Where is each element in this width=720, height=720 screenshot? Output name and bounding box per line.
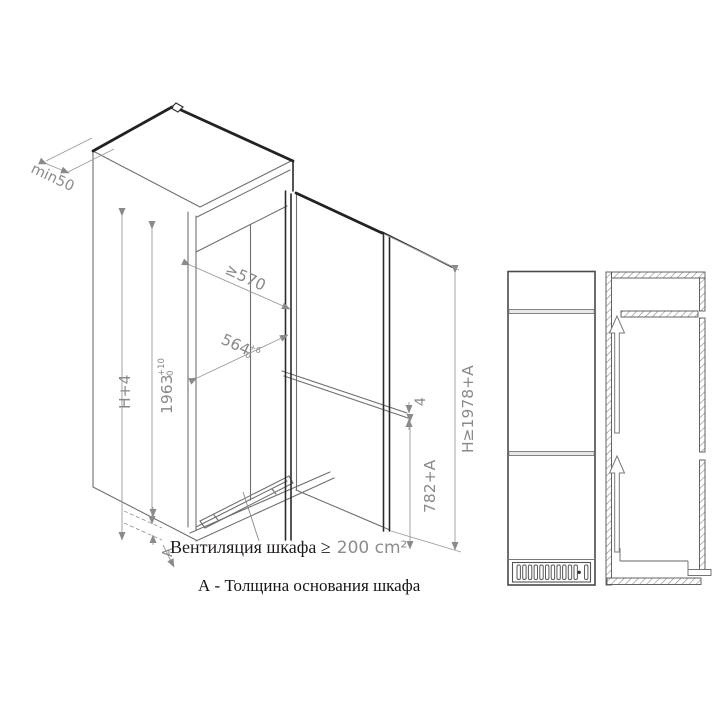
section-appliance-top: [621, 311, 698, 317]
label-width-group: 564 +6 0: [218, 330, 263, 364]
section-top-wall: [612, 272, 706, 278]
front-view: [508, 272, 595, 586]
label-niche-height: 1963: [158, 375, 176, 414]
label-h4: H+4: [116, 374, 134, 409]
front-view-top-divider: [509, 310, 594, 314]
label-door-gap: 4: [413, 397, 429, 406]
isometric-cabinet-drawing: [93, 103, 452, 541]
section-right-wall-upper: [700, 278, 706, 311]
base-definition-note: А - Толщина основания шкафа: [198, 576, 420, 596]
front-view-outline: [508, 272, 595, 586]
section-left-wall: [606, 272, 612, 585]
extension-line-top: [384, 234, 459, 270]
ventilation-note: Вентиляция шкафа ≥200 cm²: [170, 537, 407, 558]
section-bottom-duct: [620, 548, 711, 576]
dimension-min50: [46, 138, 114, 173]
diagram-canvas: min50 ≥570 564 +6 0 H+4 1963 +10 0 H≥197…: [0, 0, 720, 720]
ventilation-grille: [513, 563, 591, 583]
section-bottom-wall: [607, 578, 701, 585]
installation-diagram-page: min50 ≥570 564 +6 0 H+4 1963 +10 0 H≥197…: [0, 0, 720, 720]
ventilation-note-value: 200 cm²: [337, 538, 408, 558]
label-total-height: H≥1978+A: [459, 365, 477, 453]
label-niche-height-group: 1963 +10 0: [157, 358, 176, 414]
ventilation-note-text: Вентиляция шкафа ≥: [170, 537, 331, 557]
cabinet-thick-edges: [93, 107, 382, 233]
section-right-wall-lower: [700, 460, 706, 570]
label-lower-door: 782+A: [421, 459, 439, 513]
label-niche-tolerance-sub: 0: [166, 371, 176, 376]
front-view-middle-divider: [509, 452, 594, 456]
grille-dot: [578, 571, 581, 574]
section-view: [606, 272, 711, 585]
section-right-wall-middle: [700, 318, 706, 452]
